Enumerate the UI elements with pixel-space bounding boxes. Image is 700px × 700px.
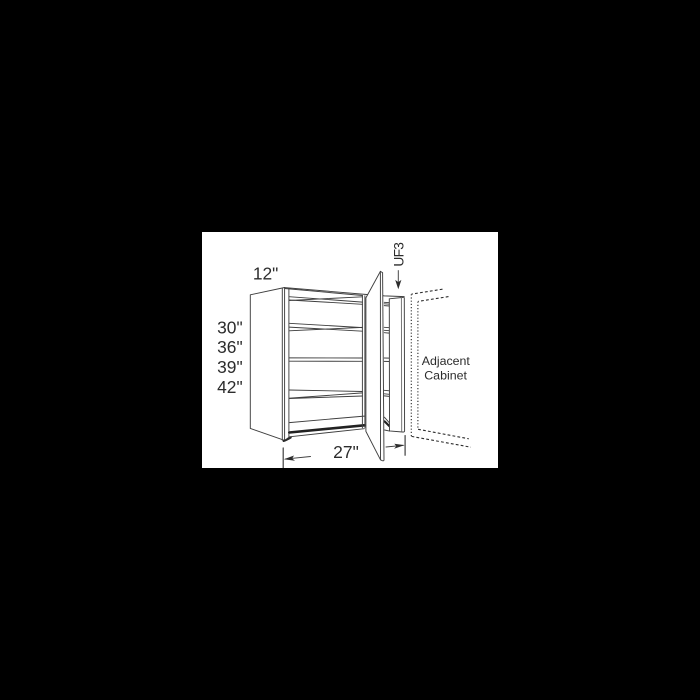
svg-text:UF3: UF3 — [391, 242, 406, 267]
svg-text:Adjacent: Adjacent — [422, 354, 471, 368]
svg-text:12": 12" — [253, 263, 279, 283]
svg-text:Cabinet: Cabinet — [424, 368, 467, 382]
svg-text:27": 27" — [333, 442, 359, 462]
svg-text:39": 39" — [217, 357, 243, 377]
svg-text:30": 30" — [217, 317, 243, 337]
svg-text:42": 42" — [217, 377, 243, 397]
svg-text:36": 36" — [217, 337, 243, 357]
